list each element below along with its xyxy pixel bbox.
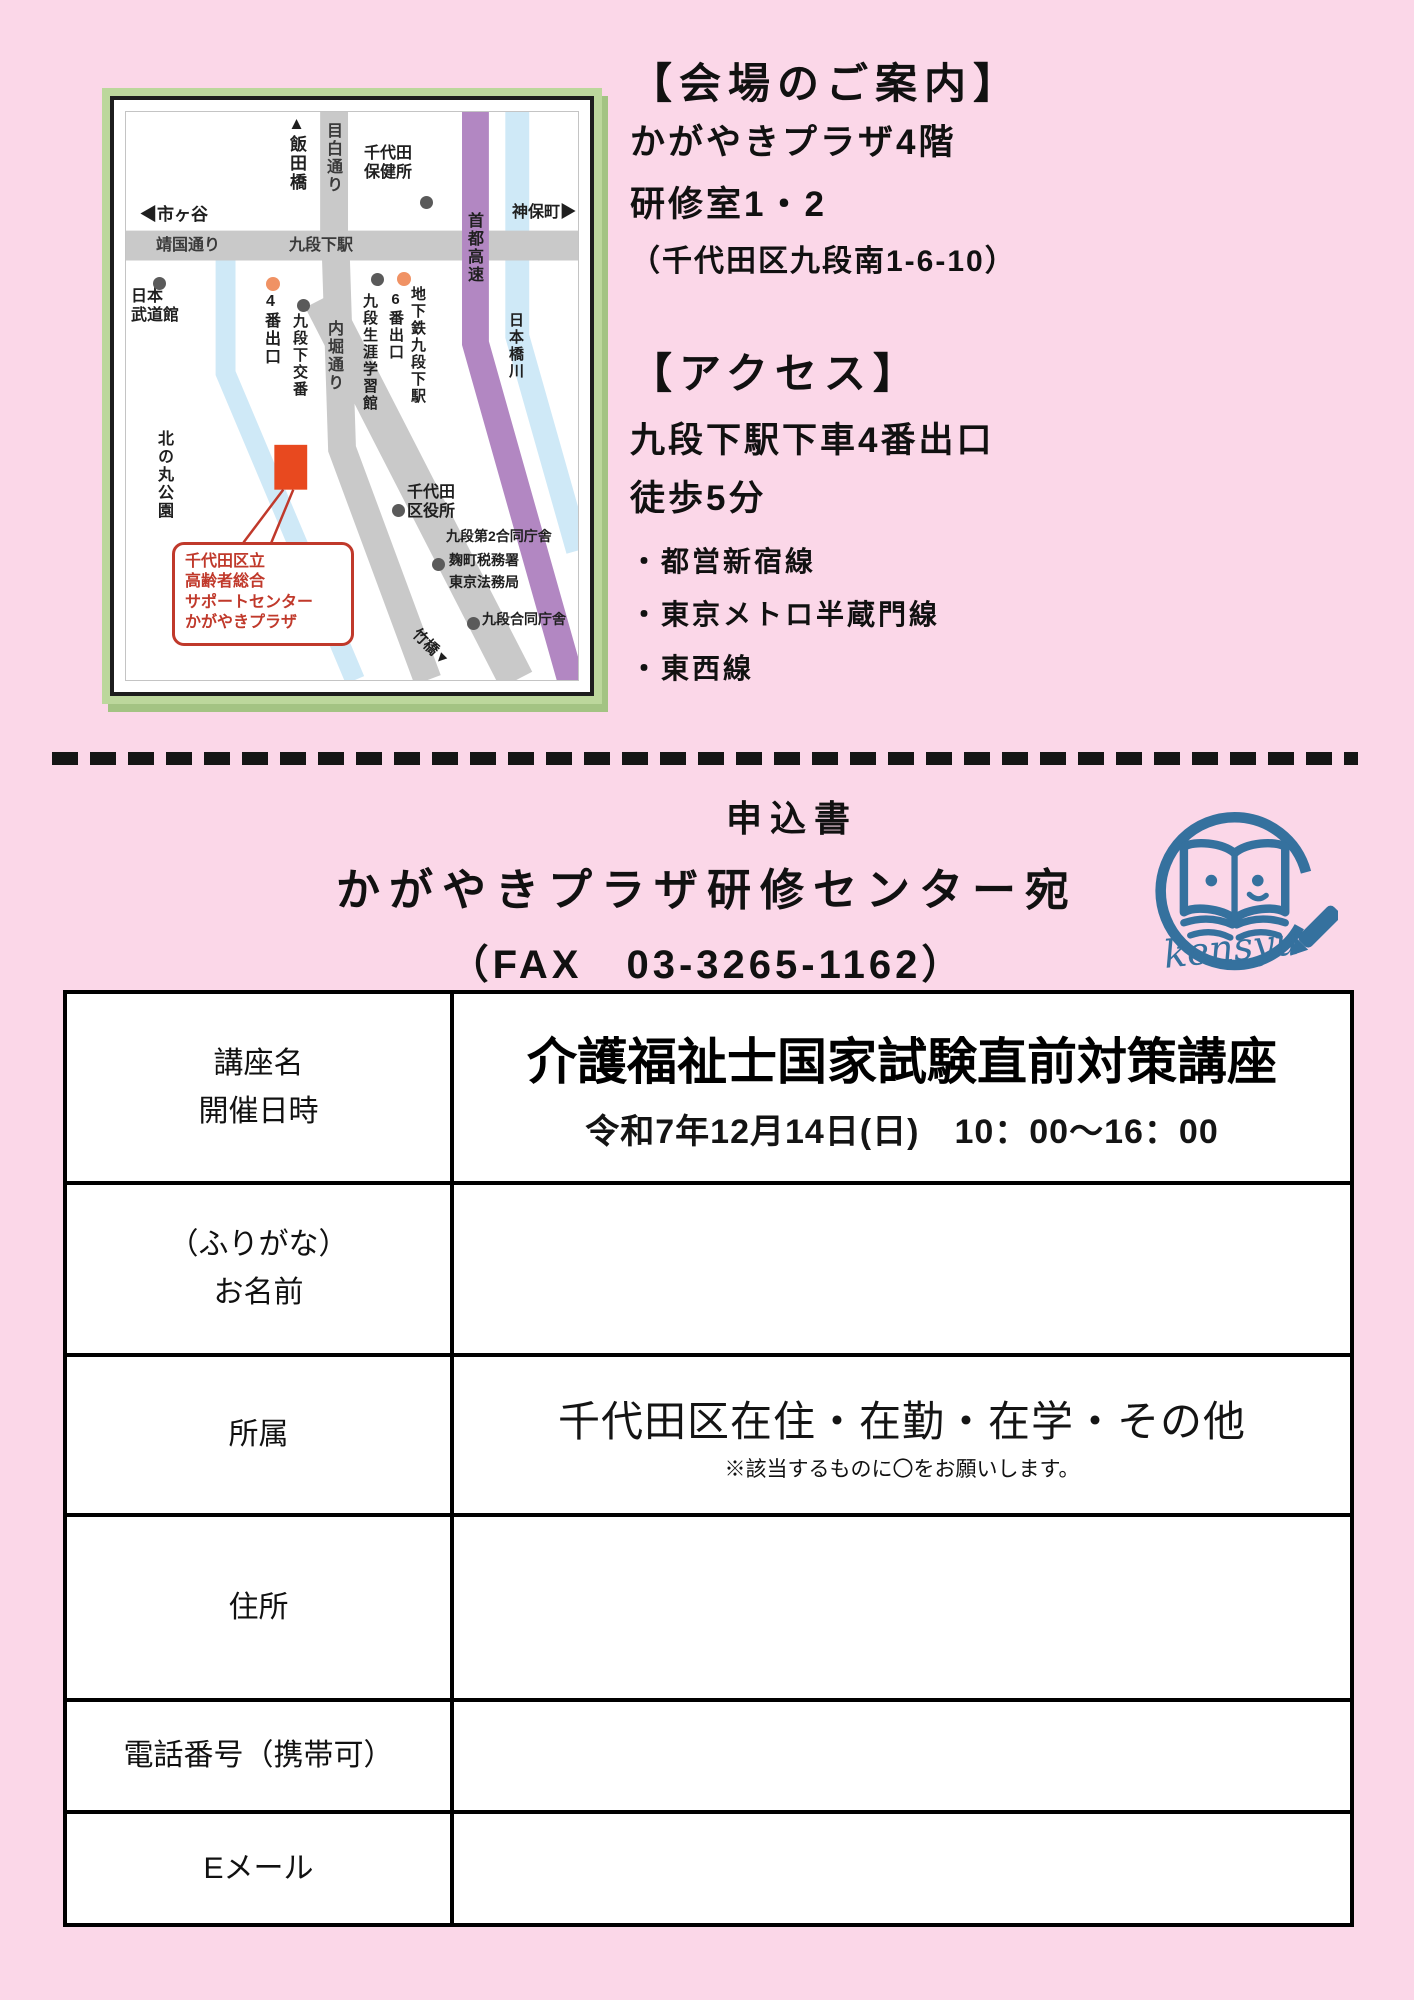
access-line2: 徒歩5分 [630, 470, 766, 521]
venue-marker [274, 445, 307, 490]
hokenjo-dot [420, 196, 433, 209]
book-left-eye [1206, 875, 1218, 887]
kensyu-logo: kensyu [1148, 794, 1338, 984]
map-label-uchibori-dori: 内堀通り [325, 320, 341, 392]
table-row-name: （ふりがな） お名前 [65, 1183, 1352, 1355]
name-input-cell [452, 1183, 1352, 1355]
budokan-dot [153, 277, 166, 290]
map-label-chiyoda-hokenjo: 千代田 保健所 [364, 145, 412, 183]
course-title: 介護福祉士国家試験直前対策講座 [454, 1022, 1350, 1094]
course-value-cell: 介護福祉士国家試験直前対策講座 令和7年12月14日(日) 10：00～16：0… [452, 992, 1352, 1183]
map-label-kudan-shogai-gakushukan: 九段生涯学習館 [362, 293, 377, 412]
address-input-cell [452, 1515, 1352, 1700]
access-bullet-tozai: ・東西線 [630, 647, 754, 687]
map-label-shuto-kosoku: 首都高速 [465, 212, 481, 284]
email-label-cell: Eメール [65, 1812, 452, 1925]
map-label-kitanomaru-koen: 北の丸公園 [155, 430, 171, 520]
access-line1: 九段下駅下車4番出口 [630, 412, 994, 463]
map-label-chiyoda-kuyakusho: 千代田 区役所 [407, 484, 455, 522]
venue-line1: かがやきプラザ4階 [630, 114, 956, 165]
table-row-affiliation: 所属 千代田区在住・在勤・在学・その他 ※該当するものに〇をお願いします。 [65, 1355, 1352, 1515]
phone-input-cell [452, 1700, 1352, 1812]
map-label-iidabashi: ▲飯田橋 [288, 114, 305, 192]
godochosha-dot [467, 617, 480, 630]
map-label-kudanshita-koban: 九段下交番 [292, 313, 307, 398]
table-row-course: 講座名 開催日時 介護福祉士国家試験直前対策講座 令和7年12月14日(日) 1… [65, 992, 1352, 1183]
exit6-dot [397, 272, 411, 286]
access-map: ▲飯田橋 目白通り 千代田 保健所 ◀市ヶ谷 靖国通り 九段下駅 神保町▶ 首都… [125, 111, 579, 681]
map-label-jimbocho: 神保町▶ [512, 204, 576, 223]
map-label-tokyo-homukyoku: 東京法務局 [449, 574, 519, 591]
table-row-address: 住所 [65, 1515, 1352, 1700]
application-form-table: 講座名 開催日時 介護福祉士国家試験直前対策講座 令和7年12月14日(日) 1… [63, 990, 1354, 1927]
logo-text: kensyu [1161, 919, 1300, 977]
map-label-exit4: 4番出口 [262, 293, 278, 366]
map-label-nihonbashi-gawa: 日本橋川 [508, 312, 523, 380]
venue-line2: 研修室1・2 [630, 176, 827, 227]
book-right-eye [1252, 875, 1264, 887]
map-label-yasukuni-dori: 靖国通り [156, 237, 220, 256]
phone-label-cell: 電話番号（携帯可） [65, 1700, 452, 1812]
map-label-exit6: 6番出口 [388, 291, 403, 361]
course-datetime: 令和7年12月14日(日) 10：00～16：00 [454, 1104, 1350, 1153]
name-label-cell: （ふりがな） お名前 [65, 1183, 452, 1355]
exit4-dot [266, 277, 280, 291]
subway-station-dot [371, 273, 384, 286]
cut-line-divider [52, 752, 1358, 765]
kuyakusho-dot [392, 504, 405, 517]
affiliation-label-cell: 所属 [65, 1355, 452, 1515]
access-map-frame: ▲飯田橋 目白通り 千代田 保健所 ◀市ヶ谷 靖国通り 九段下駅 神保町▶ 首都… [110, 96, 594, 696]
table-row-phone: 電話番号（携帯可） [65, 1700, 1352, 1812]
venue-address: （千代田区九段南1-6-10） [630, 236, 1017, 280]
venue-callout-box: 千代田区立 高齢者総合 サポートセンター かがやきプラザ [172, 542, 354, 646]
access-bullet-hanzomon: ・東京メトロ半蔵門線 [630, 593, 940, 633]
map-label-chikatetsu-kudanshita: 地下鉄九段下駅 [410, 286, 425, 405]
map-label-kudanshita-station: 九段下駅 [289, 237, 353, 256]
map-label-ichigaya: ◀市ヶ谷 [140, 205, 208, 225]
course-label-cell: 講座名 開催日時 [65, 992, 452, 1183]
zeimusho-dot [432, 558, 445, 571]
map-label-kojimachi-zeimusho: 麹町税務署 [449, 552, 519, 569]
venue-heading: 【会場のご案内】 [630, 50, 1022, 111]
email-input-cell [452, 1812, 1352, 1925]
map-label-mejiro-dori: 目白通り [324, 122, 340, 194]
flyer-page: ▲飯田橋 目白通り 千代田 保健所 ◀市ヶ谷 靖国通り 九段下駅 神保町▶ 首都… [0, 0, 1414, 2000]
access-bullet-toei-shinjuku: ・都営新宿線 [630, 540, 816, 580]
map-label-nihon-budokan: 日本 武道館 [131, 288, 179, 326]
affiliation-note: ※該当するものに〇をお願いします。 [454, 1453, 1350, 1483]
koban-dot [297, 299, 310, 312]
affiliation-options: 千代田区在住・在勤・在学・その他 [454, 1388, 1350, 1449]
access-heading: 【アクセス】 [630, 340, 922, 401]
address-label-cell: 住所 [65, 1515, 452, 1700]
map-label-kudan-dai2-godochosha: 九段第2合同庁舎 [446, 528, 552, 545]
table-row-email: Eメール [65, 1812, 1352, 1925]
affiliation-value-cell: 千代田区在住・在勤・在学・その他 ※該当するものに〇をお願いします。 [452, 1355, 1352, 1515]
map-label-kudan-godochosha: 九段合同庁舎 [482, 611, 566, 628]
